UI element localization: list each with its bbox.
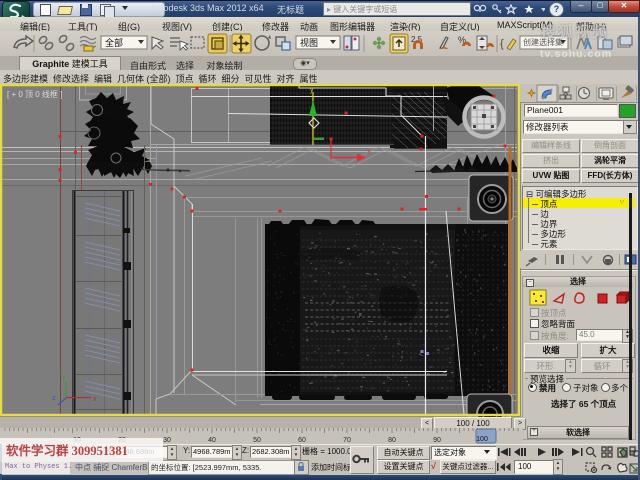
svg-text:视图: 视图 [300, 37, 318, 48]
svg-text:x: x [367, 149, 371, 156]
svg-text:100: 100 [476, 436, 488, 443]
svg-text:全部: 全部 [105, 37, 123, 48]
svg-text:40: 40 [208, 437, 216, 444]
svg-text:70: 70 [343, 437, 351, 444]
svg-text:{: { [500, 38, 504, 50]
svg-text:60: 60 [298, 437, 306, 444]
svg-text:x: x [93, 396, 97, 403]
svg-text:y: y [62, 374, 66, 381]
svg-text:50: 50 [253, 437, 261, 444]
svg-text:90: 90 [433, 437, 441, 444]
svg-text:[ + 0 顶 0 线框 ]: [ + 0 顶 0 线框 ] [7, 89, 62, 99]
svg-text:z: z [52, 395, 56, 402]
svg-text:30: 30 [163, 437, 171, 444]
svg-text:80: 80 [388, 437, 396, 444]
svg-text:y: y [310, 87, 314, 94]
